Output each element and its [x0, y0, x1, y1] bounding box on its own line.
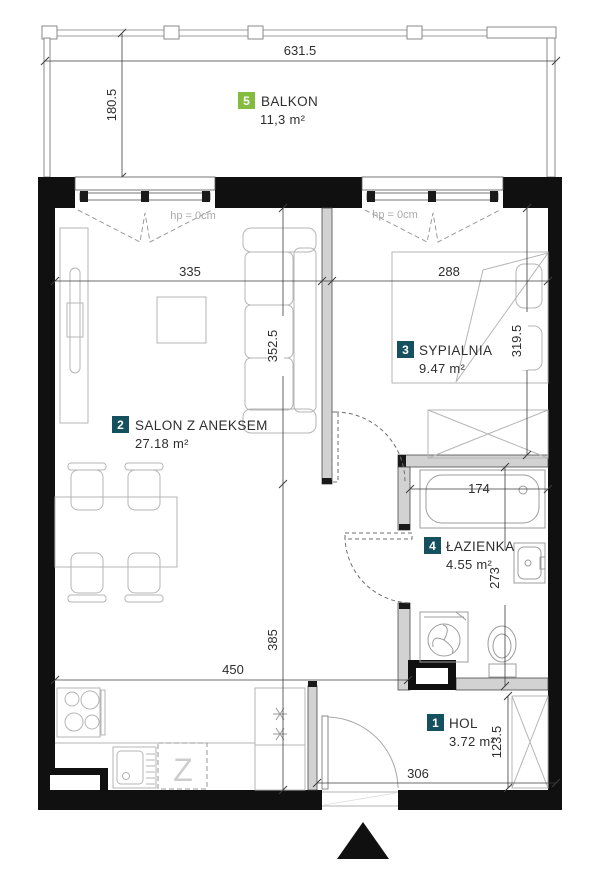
dishwasher: Z	[158, 743, 207, 789]
dishwasher-symbol: Z	[173, 752, 193, 788]
room-label-salon: 2 SALON Z ANEKSEM 27.18 m²	[112, 416, 268, 451]
balcony-railing-post	[42, 26, 57, 39]
fridge-freezer	[255, 688, 305, 790]
room-number-lazienka: 4	[429, 539, 436, 553]
tv-cabinet	[60, 228, 88, 423]
balcony-railing-post	[164, 26, 179, 39]
room-number-salon: 2	[117, 418, 124, 432]
dim-bathroom-width: 174	[468, 481, 490, 496]
room-label-hol: 1 HOL 3.72 m²	[427, 714, 496, 749]
room-area-lazienka: 4.55 m²	[446, 557, 493, 572]
room-area-hol: 3.72 m²	[449, 734, 496, 749]
dim-balcony-width: 631.5	[284, 43, 317, 58]
room-name-hol: HOL	[449, 716, 478, 731]
window-sill-label-bedroom: hp = 0cm	[372, 209, 418, 221]
balcony: 631.5 180.5 5 BALKON 11,3 m²	[41, 26, 560, 181]
floor-plan-canvas: 631.5 180.5 5 BALKON 11,3 m² hp = 0cm	[0, 0, 600, 891]
bathroom-door	[345, 533, 412, 603]
dim-bedroom-depth: 319.5	[509, 325, 524, 358]
pillow	[516, 264, 542, 308]
kitchen-sink	[113, 747, 156, 788]
balcony-railing-post	[248, 26, 263, 39]
dim-salon-depth: 352.5	[265, 330, 280, 363]
salon-window: hp = 0cm	[75, 177, 216, 242]
room-name-salon: SALON Z ANEKSEM	[135, 418, 268, 433]
stove	[57, 688, 105, 737]
room-area-sypialnia: 9.47 m²	[419, 361, 466, 376]
dim-balcony-depth: 180.5	[104, 89, 119, 122]
washing-machine	[420, 612, 468, 662]
room-number-balkon: 5	[243, 94, 250, 108]
freezer-snowflake-icon	[273, 708, 287, 720]
balcony-railing-post	[407, 26, 422, 39]
room-name-lazienka: ŁAZIENKA	[446, 539, 514, 554]
chair	[125, 553, 163, 602]
chair	[68, 553, 106, 602]
room-area-salon: 27.18 m²	[135, 436, 189, 451]
room-area-balkon: 11,3 m²	[260, 112, 306, 127]
floor-plan: 631.5 180.5 5 BALKON 11,3 m² hp = 0cm	[0, 0, 600, 891]
window-sill-label-salon: hp = 0cm	[170, 210, 216, 222]
dim-hall-width: 306	[407, 766, 429, 781]
bedroom-door	[332, 412, 405, 482]
entrance-door	[322, 716, 398, 806]
dim-kitchen-zone-depth: 385	[265, 629, 280, 651]
dining-table-set	[55, 463, 177, 602]
balcony-right-rail	[547, 38, 555, 177]
room-number-sypialnia: 3	[402, 343, 409, 357]
coffee-table	[157, 297, 206, 343]
hall-wardrobe	[512, 696, 548, 788]
dim-salon-width: 335	[179, 264, 201, 279]
washbasin	[514, 543, 545, 583]
dim-bedroom-width: 288	[438, 264, 460, 279]
dim-kitchen-zone-width: 450	[222, 662, 244, 677]
room-label-sypialnia: 3 SYPIALNIA 9.47 m²	[397, 341, 492, 376]
room-number-hol: 1	[432, 716, 439, 730]
freezer-snowflake-icon	[273, 728, 287, 740]
bedroom-wardrobe	[428, 410, 548, 458]
chair	[68, 463, 106, 510]
balcony-side-wall	[487, 27, 556, 38]
toilet	[488, 626, 516, 677]
room-name-sypialnia: SYPIALNIA	[419, 343, 492, 358]
room-name-balkon: BALKON	[261, 94, 318, 109]
bedroom-window: hp = 0cm	[362, 177, 503, 242]
north-arrow-icon	[337, 822, 389, 859]
chair	[125, 463, 163, 510]
bathtub	[420, 470, 545, 528]
